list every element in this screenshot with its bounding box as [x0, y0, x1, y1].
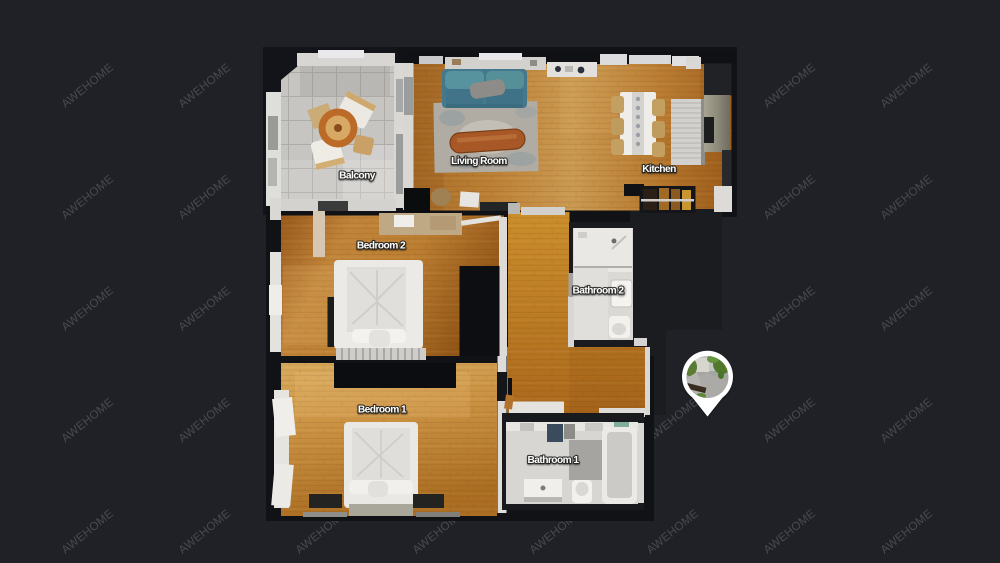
- svg-text:Kitchen: Kitchen: [642, 164, 676, 175]
- svg-text:Bathroom 2: Bathroom 2: [572, 286, 624, 297]
- svg-text:Bedroom 1: Bedroom 1: [358, 405, 407, 416]
- svg-text:Bedroom 2: Bedroom 2: [357, 241, 406, 252]
- svg-text:Living Room: Living Room: [451, 156, 507, 167]
- svg-text:Bathroom 1: Bathroom 1: [527, 455, 579, 466]
- svg-text:Balcony: Balcony: [339, 171, 376, 182]
